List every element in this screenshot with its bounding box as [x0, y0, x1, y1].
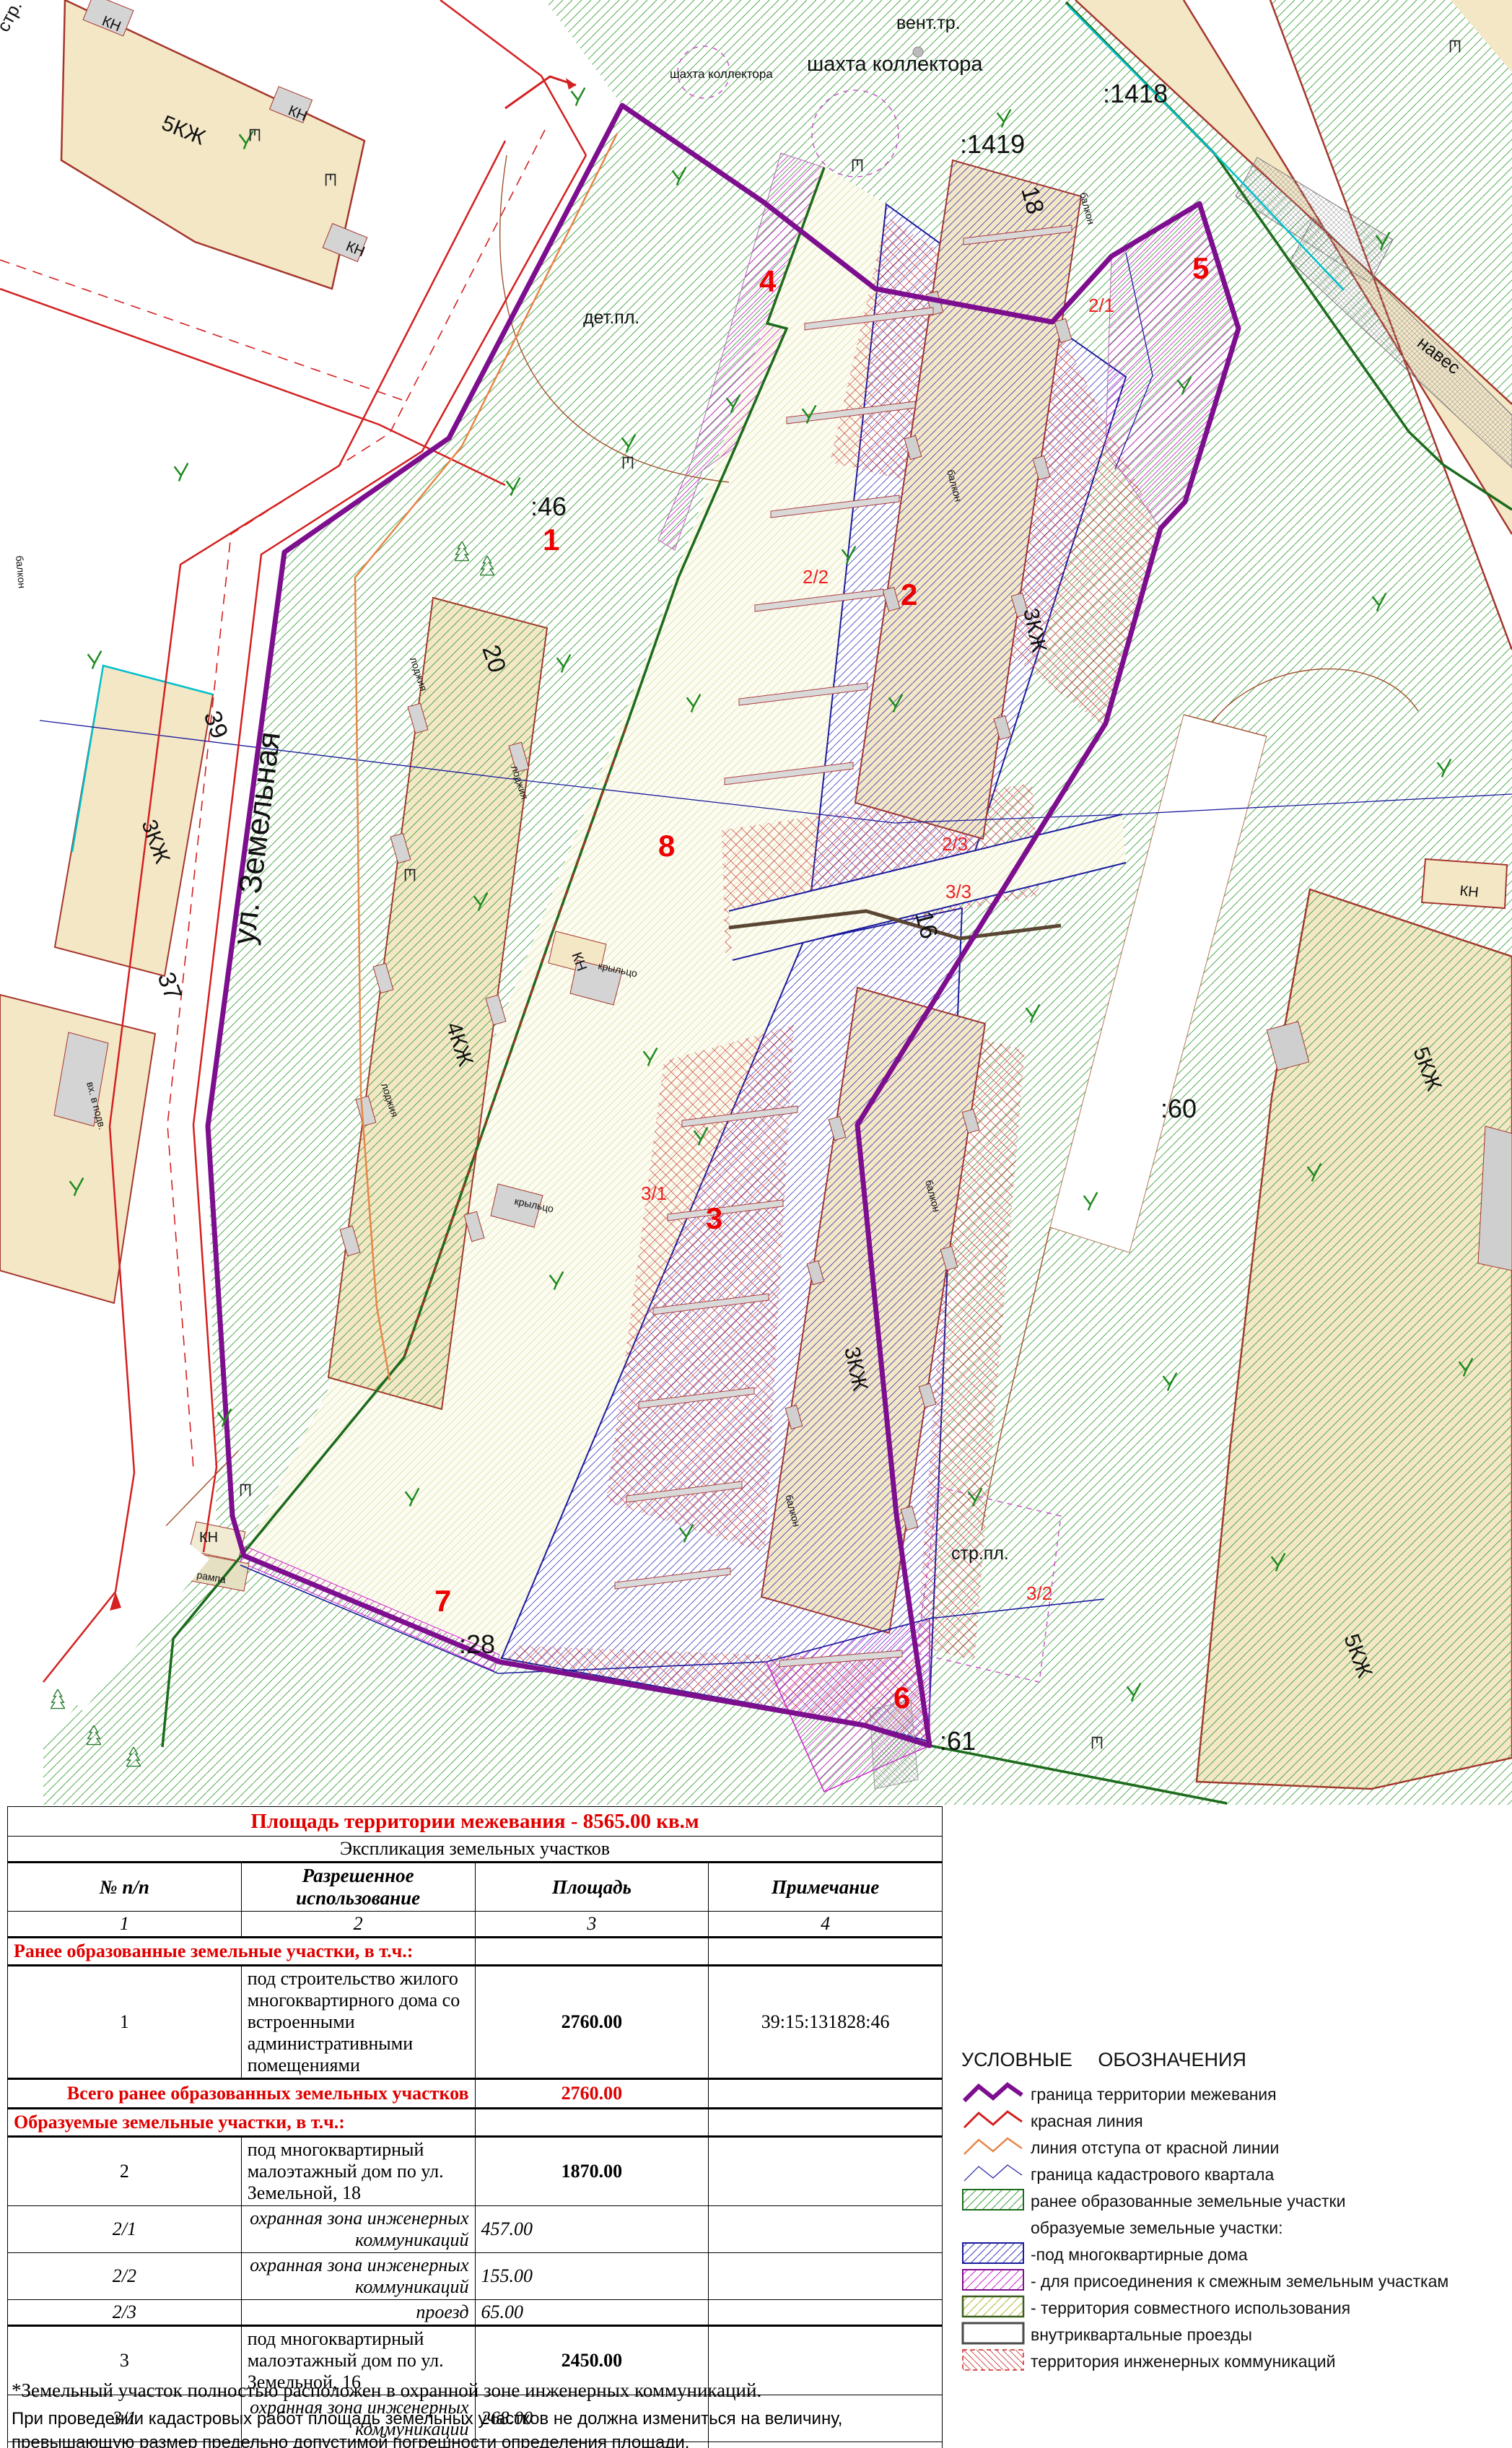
map-label: 7: [434, 1584, 451, 1618]
legend-item: граница территории межевания: [961, 2081, 1510, 2108]
map-label: КН: [199, 1530, 218, 1546]
table-cell: [709, 2206, 943, 2253]
inner-drives-swatch: [961, 2321, 1031, 2349]
map-label: 2: [901, 578, 917, 611]
common-use-swatch: [961, 2294, 1031, 2322]
legend-label: линия отступа от красной линии: [1031, 2138, 1279, 2158]
map-label: 2/3: [942, 833, 968, 855]
table-cell: 155.00: [475, 2253, 709, 2300]
legend-label: - территория совместного использования: [1031, 2299, 1350, 2318]
map-label: :28: [459, 1629, 495, 1659]
legend-label: - для присоединения к смежным земельным …: [1031, 2272, 1448, 2291]
prior-parcels-swatch: [961, 2187, 1031, 2216]
legend-item: территория инженерных коммуникаций: [961, 2348, 1510, 2375]
map-label: дет.пл.: [583, 308, 639, 328]
offset-line-zigzag-icon: [961, 2134, 1031, 2162]
utility-territory-swatch: [961, 2348, 1031, 2376]
table-cell: [709, 2253, 943, 2300]
table-row: 2/3проезд65.00: [8, 2300, 943, 2326]
table-cell: 39:15:131828:46: [709, 1966, 943, 2079]
map-label: 1: [543, 523, 559, 557]
legend-item: линия отступа от красной линии: [961, 2135, 1510, 2161]
map-label: стр.пл.: [951, 1543, 1009, 1564]
table-cell: 1: [8, 1966, 242, 2079]
table-cell: под многоквартирный малоэтажный дом по у…: [241, 2137, 475, 2206]
table-cell: 2760.00: [475, 1966, 709, 2079]
table-cell: [475, 2109, 709, 2137]
col-num-1: 1: [8, 1912, 242, 1938]
table-row: Ранее образованные земельные участки, в …: [8, 1938, 943, 1966]
table-cell: [709, 2109, 943, 2137]
table-row: 2/1охранная зона инженерных коммуникаций…: [8, 2206, 943, 2253]
map-label: :61: [940, 1726, 976, 1756]
legend: УСЛОВНЫЕ ОБОЗНАЧЕНИЯ граница территории …: [961, 2049, 1510, 2375]
map-label: 3/2: [1026, 1582, 1052, 1604]
legend-label: ранее образованные земельные участки: [1031, 2192, 1345, 2211]
adjacent-parcels-swatch: [961, 2268, 1031, 2296]
table-cell: под строительство жилого многоквартирног…: [241, 1966, 475, 2079]
legend-item: ранее образованные земельные участки: [961, 2188, 1510, 2215]
table-row: 2под многоквартирный малоэтажный дом по …: [8, 2137, 943, 2206]
table-cell: [709, 2300, 943, 2326]
table-cell: [709, 2137, 943, 2206]
legend-item: - для присоединения к смежным земельным …: [961, 2268, 1510, 2295]
table-cell: 457.00: [475, 2206, 709, 2253]
map-label: 5: [1192, 251, 1209, 285]
legend-label: граница территории межевания: [1031, 2085, 1277, 2104]
col-header-area: Площадь: [475, 1863, 709, 1912]
legend-label: внутриквартальные проезды: [1031, 2325, 1252, 2345]
legend-label: образуемые земельные участки:: [1031, 2218, 1282, 2238]
table-cell: 2/3: [8, 2300, 242, 2326]
table-subtitle-row: Экспликация земельных участков: [8, 1837, 943, 1863]
col-header-note: Примечание: [709, 1863, 943, 1912]
map-label: 2/2: [803, 566, 829, 588]
red-line-zigzag-icon: [961, 2107, 1031, 2135]
legend-item: внутриквартальные проезды: [961, 2322, 1510, 2348]
legend-label: красная линия: [1031, 2112, 1143, 2131]
map-label: шахта коллектора: [670, 67, 773, 81]
map-label: шахта коллектора: [807, 53, 983, 76]
survey-map: стр.вент.тр.шахта коллекторашахта коллек…: [0, 0, 1512, 1808]
legend-item: -под многоквартирные дома: [961, 2242, 1510, 2268]
map-label: 8: [658, 829, 675, 863]
footnote-note: При проведении кадастровых работ площадь…: [12, 2407, 935, 2448]
cadastral-survey-sheet: стр.вент.тр.шахта коллекторашахта коллек…: [0, 0, 1512, 2448]
table-cell: 1870.00: [475, 2137, 709, 2206]
legend-item: - территория совместного использования: [961, 2295, 1510, 2322]
col-num-2: 2: [241, 1912, 475, 1938]
map-label: :46: [530, 492, 567, 521]
table-row: 2/2охранная зона инженерных коммуникаций…: [8, 2253, 943, 2300]
legend-item: граница кадастрового квартала: [961, 2161, 1510, 2188]
col-header-use: Разрешенное использование: [241, 1863, 475, 1912]
map-label: 3/1: [641, 1182, 667, 1204]
table-cell: Образуемые земельные участки, в т.ч.:: [8, 2109, 476, 2137]
footnote-note-line1: При проведении кадастровых работ площадь…: [12, 2407, 935, 2431]
legend-label: территория инженерных коммуникаций: [1031, 2352, 1335, 2371]
table-row: Образуемые земельные участки, в т.ч.:: [8, 2109, 943, 2137]
map-label: КН: [1459, 883, 1479, 901]
boundary-zigzag-icon: [961, 2081, 1031, 2109]
footnote-note-line2: превышающую размер предельно допустимой …: [12, 2431, 935, 2448]
table-row: 1под строительство жилого многоквартирно…: [8, 1966, 943, 2079]
survey-map-canvas: стр.вент.тр.шахта коллекторашахта коллек…: [0, 0, 1512, 1808]
map-label: 4: [759, 264, 777, 298]
table-cell: охранная зона инженерных коммуникаций: [241, 2253, 475, 2300]
table-title: Площадь территории межевания - 8565.00 к…: [8, 1807, 943, 1837]
map-label: :60: [1161, 1094, 1197, 1123]
table-cell: [475, 1938, 709, 1966]
table-cell: Всего ранее образованных земельных участ…: [8, 2079, 476, 2109]
footnote-star: *Земельный участок полностью расположен …: [12, 2379, 761, 2402]
table-cell: 2: [8, 2137, 242, 2206]
map-label: :1419: [960, 129, 1025, 159]
table-title-row: Площадь территории межевания - 8565.00 к…: [8, 1807, 943, 1837]
table-cell: 2/1: [8, 2206, 242, 2253]
col-num-4: 4: [709, 1912, 943, 1938]
table-row: Всего ранее образованных земельных участ…: [8, 2079, 943, 2109]
table-cell: проезд: [241, 2300, 475, 2326]
explication-table-wrap: Площадь территории межевания - 8565.00 к…: [7, 1806, 943, 2448]
col-num-3: 3: [475, 1912, 709, 1938]
map-label: 2/1: [1088, 295, 1114, 316]
map-label: 3: [706, 1201, 722, 1235]
table-subtitle: Экспликация земельных участков: [8, 1837, 943, 1863]
table-cell: [709, 1938, 943, 1966]
map-label: 6: [893, 1681, 910, 1715]
apartment-parcels-swatch: [961, 2241, 1031, 2269]
table-cell: [709, 2079, 943, 2109]
col-header-num: № п/п: [8, 1863, 242, 1912]
table-cell: 2760.00: [475, 2079, 709, 2109]
table-cell: 2/2: [8, 2253, 242, 2300]
cadastral-line-zigzag-icon: [961, 2161, 1031, 2189]
table-cell: Ранее образованные земельные участки, в …: [8, 1938, 476, 1966]
legend-label: -под многоквартирные дома: [1031, 2245, 1248, 2265]
legend-label: граница кадастрового квартала: [1031, 2165, 1274, 2185]
column-number-row: 1 2 3 4: [8, 1912, 943, 1938]
table-cell: охранная зона инженерных коммуникаций: [241, 2206, 475, 2253]
table-header-row: № п/п Разрешенное использование Площадь …: [8, 1863, 943, 1912]
legend-item: красная линия: [961, 2108, 1510, 2135]
explication-table: Площадь территории межевания - 8565.00 к…: [7, 1806, 943, 2448]
legend-item: образуемые земельные участки:: [961, 2215, 1510, 2242]
map-label: :1418: [1103, 79, 1168, 108]
legend-title: УСЛОВНЫЕ ОБОЗНАЧЕНИЯ: [961, 2049, 1510, 2071]
table-cell: 65.00: [475, 2300, 709, 2326]
map-label: вент.тр.: [896, 13, 961, 33]
map-label: 3/3: [945, 881, 971, 902]
